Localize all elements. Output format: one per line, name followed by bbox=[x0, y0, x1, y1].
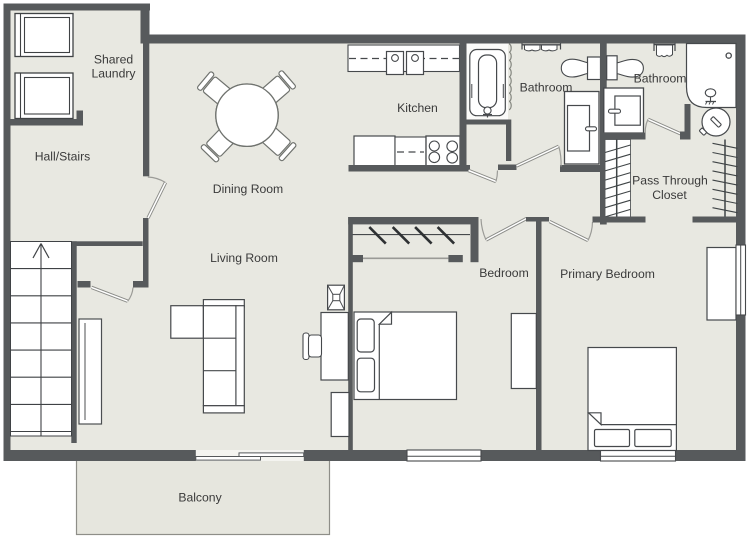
svg-text:Shared: Shared bbox=[94, 53, 133, 67]
svg-text:Kitchen: Kitchen bbox=[397, 101, 438, 115]
svg-text:Balcony: Balcony bbox=[178, 491, 222, 505]
svg-text:Hall/Stairs: Hall/Stairs bbox=[35, 150, 91, 164]
svg-text:Bathroom: Bathroom bbox=[634, 72, 687, 86]
svg-text:Pass Through: Pass Through bbox=[632, 174, 708, 188]
svg-text:Bathroom: Bathroom bbox=[520, 81, 573, 95]
svg-text:Dining Room: Dining Room bbox=[213, 182, 283, 196]
svg-text:Living Room: Living Room bbox=[210, 251, 278, 265]
svg-text:Laundry: Laundry bbox=[91, 67, 136, 81]
svg-text:Closet: Closet bbox=[652, 188, 687, 202]
svg-text:Primary Bedroom: Primary Bedroom bbox=[560, 267, 655, 281]
svg-text:Bedroom: Bedroom bbox=[479, 266, 528, 280]
